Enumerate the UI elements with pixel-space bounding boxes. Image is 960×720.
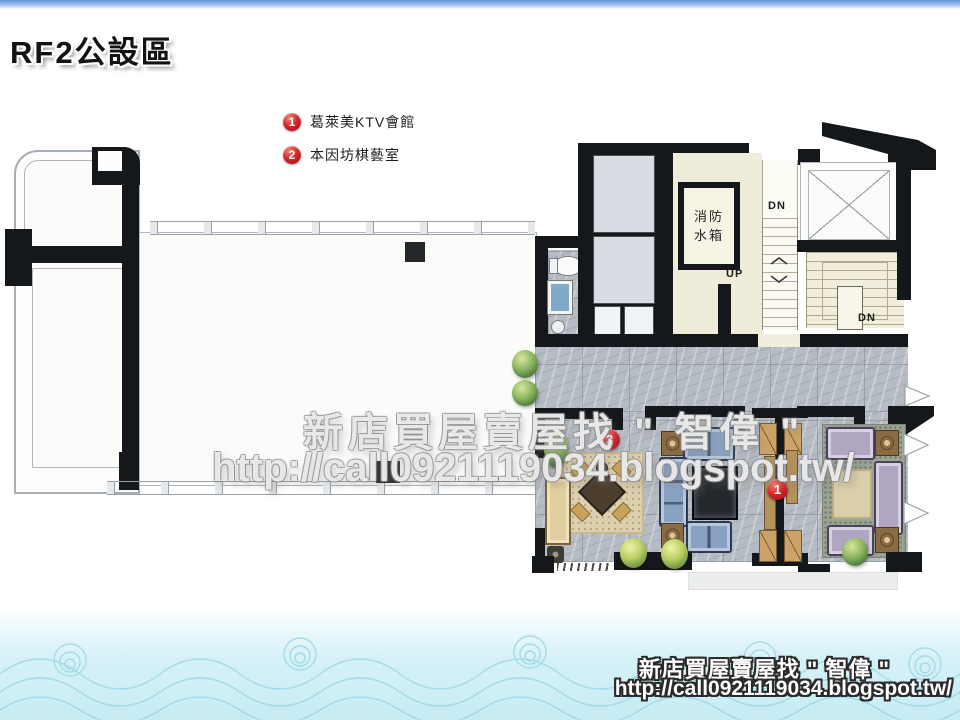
wall-segment [5, 229, 32, 286]
stair-opening [758, 334, 800, 347]
column [376, 461, 400, 483]
cabinet [784, 530, 802, 562]
sofa [686, 521, 732, 553]
fire-tank-label-line2: 水箱 [694, 226, 724, 246]
legend-label-chess: 本因坊棋藝室 [310, 145, 400, 165]
area-rug [832, 469, 872, 519]
railing-top [150, 221, 535, 235]
fire-water-tank: 消防 水箱 [678, 182, 740, 270]
chess-chair [570, 502, 591, 523]
side-table [661, 431, 684, 456]
toilet-tank [549, 258, 558, 274]
coffee-table [692, 466, 738, 520]
plant [544, 428, 568, 468]
sofa [826, 427, 875, 460]
wall-stub [612, 408, 623, 430]
dn-label-lower: DN [858, 312, 876, 324]
cabinet [759, 530, 777, 562]
wall-segment [897, 252, 911, 300]
wall-segment [122, 180, 139, 472]
left-wing-room-bottom [32, 268, 128, 468]
sofa [683, 427, 735, 461]
sofa [874, 461, 903, 535]
dn-label-upper: DN [768, 200, 786, 212]
legend-item-chess: 2 本因坊棋藝室 [283, 145, 415, 165]
wall-notch [98, 151, 122, 171]
railing-bottom [107, 481, 535, 495]
wall-segment [535, 408, 623, 419]
stair-break-marks [768, 256, 790, 284]
wall-segment [886, 552, 922, 572]
fire-tank-label-line1: 消防 [694, 207, 724, 227]
slide: RF2公設區 1 葛萊美KTV會館 2 本因坊棋藝室 [0, 0, 960, 720]
wall-segment [673, 143, 749, 153]
wall-segment [14, 246, 139, 263]
plant [620, 538, 647, 568]
table-lamp [596, 462, 608, 474]
footer-url: http://call0921119034.blogspot.tw/ [615, 677, 952, 701]
wall-stub [645, 406, 656, 430]
wave-curl [284, 638, 316, 670]
wave-curl [514, 636, 546, 668]
sofa [659, 457, 688, 527]
wall-segment [532, 556, 554, 573]
wave-curl [54, 644, 86, 676]
wall-segment [896, 150, 911, 246]
plan-marker-1: 1 [767, 479, 788, 500]
page-title: RF2公設區 [10, 27, 174, 72]
sink [548, 281, 572, 314]
wall-segment [535, 334, 908, 347]
legend-marker-1: 1 [283, 113, 301, 131]
door-swing-icon [902, 500, 930, 526]
chess-chair [570, 460, 591, 481]
open-terrace-room [139, 232, 537, 486]
floor-drain [551, 320, 565, 334]
divider-cap [752, 408, 808, 418]
hatch-strip [557, 563, 611, 571]
wall-stub [734, 406, 745, 430]
balcony-shadow [688, 572, 898, 590]
chess-chair [611, 502, 632, 523]
bench [545, 477, 571, 545]
chess-table-set [566, 456, 636, 526]
plan-marker-2: 2 [599, 429, 620, 450]
elevator-shaft [593, 236, 655, 304]
top-gradient-bar [0, 0, 960, 9]
cabinet [759, 423, 777, 455]
side-table [875, 430, 899, 456]
plant [842, 538, 868, 566]
corridor-floor [535, 346, 908, 412]
column [405, 242, 425, 262]
legend: 1 葛萊美KTV會館 2 本因坊棋藝室 [283, 112, 415, 165]
legend-item-ktv: 1 葛萊美KTV會館 [283, 112, 415, 132]
plant [512, 380, 538, 406]
console-table [786, 450, 798, 504]
legend-marker-2: 2 [283, 146, 301, 164]
plant [661, 539, 688, 569]
side-table [875, 527, 899, 553]
wall-segment [645, 406, 745, 417]
plant [512, 350, 538, 378]
top-right-skylight [808, 170, 890, 240]
door-swing-icon [902, 432, 930, 458]
elevator-shaft [593, 155, 655, 233]
wave-curl [909, 648, 941, 680]
chess-chair [611, 460, 632, 481]
legend-label-ktv: 葛萊美KTV會館 [310, 112, 415, 132]
wall-segment [797, 240, 911, 252]
